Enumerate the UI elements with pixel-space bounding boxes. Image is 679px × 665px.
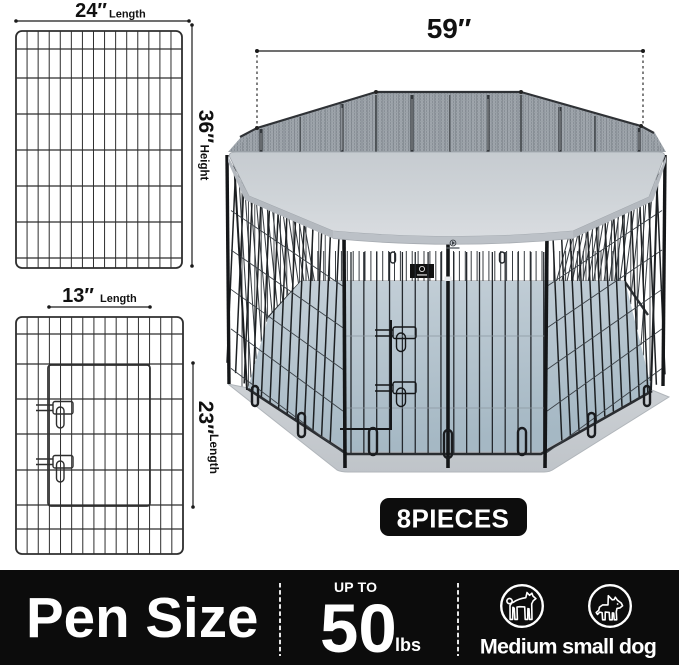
svg-text:lbs: lbs [395, 635, 421, 655]
svg-text:Length: Length [100, 293, 137, 305]
svg-text:Height: Height [198, 145, 210, 181]
svg-text:Pen Size: Pen Size [26, 586, 258, 649]
svg-text:50: 50 [320, 590, 397, 665]
svg-text:36″: 36″ [194, 110, 217, 143]
svg-text:23″: 23″ [194, 401, 217, 434]
svg-text:8PIECES: 8PIECES [397, 504, 510, 534]
svg-text:13″: 13″ [62, 285, 94, 307]
svg-text:Length: Length [109, 9, 146, 21]
svg-text:Length: Length [207, 434, 221, 474]
svg-text:24″: 24″ [75, 0, 107, 22]
svg-text:Medium small dog: Medium small dog [480, 635, 656, 659]
svg-text:59″: 59″ [427, 13, 472, 44]
